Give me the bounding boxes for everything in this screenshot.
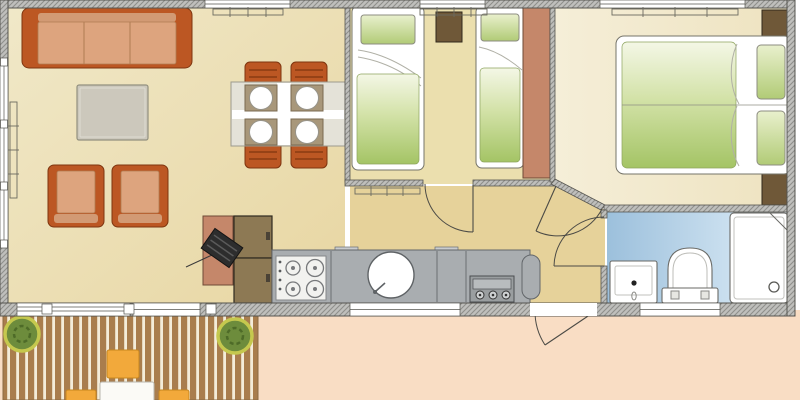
potted-plant — [5, 317, 39, 351]
garden-chair — [107, 350, 139, 378]
garden-table — [100, 382, 154, 400]
window — [0, 58, 8, 248]
bedside-table — [436, 12, 462, 42]
window — [133, 303, 200, 316]
window — [640, 303, 720, 316]
storage-cabinets — [234, 216, 272, 303]
washbasin — [610, 261, 657, 303]
round-sink — [368, 252, 414, 298]
bedside-table — [762, 172, 790, 205]
place-setting — [245, 85, 277, 111]
bedside-table — [762, 10, 790, 37]
shower-tray — [730, 213, 788, 303]
pillow — [757, 45, 785, 99]
floor-plan-page — [0, 0, 800, 400]
potted-plant — [218, 319, 252, 353]
worktop-end — [522, 255, 540, 299]
terrace — [3, 313, 258, 400]
door-post — [206, 304, 216, 314]
patio-sliding-door — [17, 303, 130, 316]
coffee-table — [77, 85, 148, 140]
window — [420, 0, 485, 8]
place-setting — [245, 119, 277, 145]
armchair — [48, 165, 104, 227]
kitchen — [272, 247, 540, 303]
wardrobe — [523, 6, 550, 178]
garden-chair — [159, 390, 189, 400]
window — [600, 0, 745, 8]
entrance-door-opening — [530, 303, 597, 316]
single-bed — [476, 6, 524, 168]
gas-hob — [276, 256, 326, 300]
door-post — [42, 304, 52, 314]
cooker — [470, 276, 514, 302]
place-setting — [291, 119, 323, 145]
place-setting — [291, 85, 323, 111]
window — [350, 303, 460, 316]
three-seat-sofa — [22, 8, 192, 68]
single-bed — [352, 6, 424, 170]
right-wall — [787, 0, 795, 316]
armchair — [112, 165, 168, 227]
door-post — [124, 304, 134, 314]
floor-plan — [0, 0, 800, 400]
window — [205, 0, 290, 8]
double-bed — [616, 36, 792, 174]
pillow — [757, 111, 785, 165]
garden-chair — [66, 390, 96, 400]
